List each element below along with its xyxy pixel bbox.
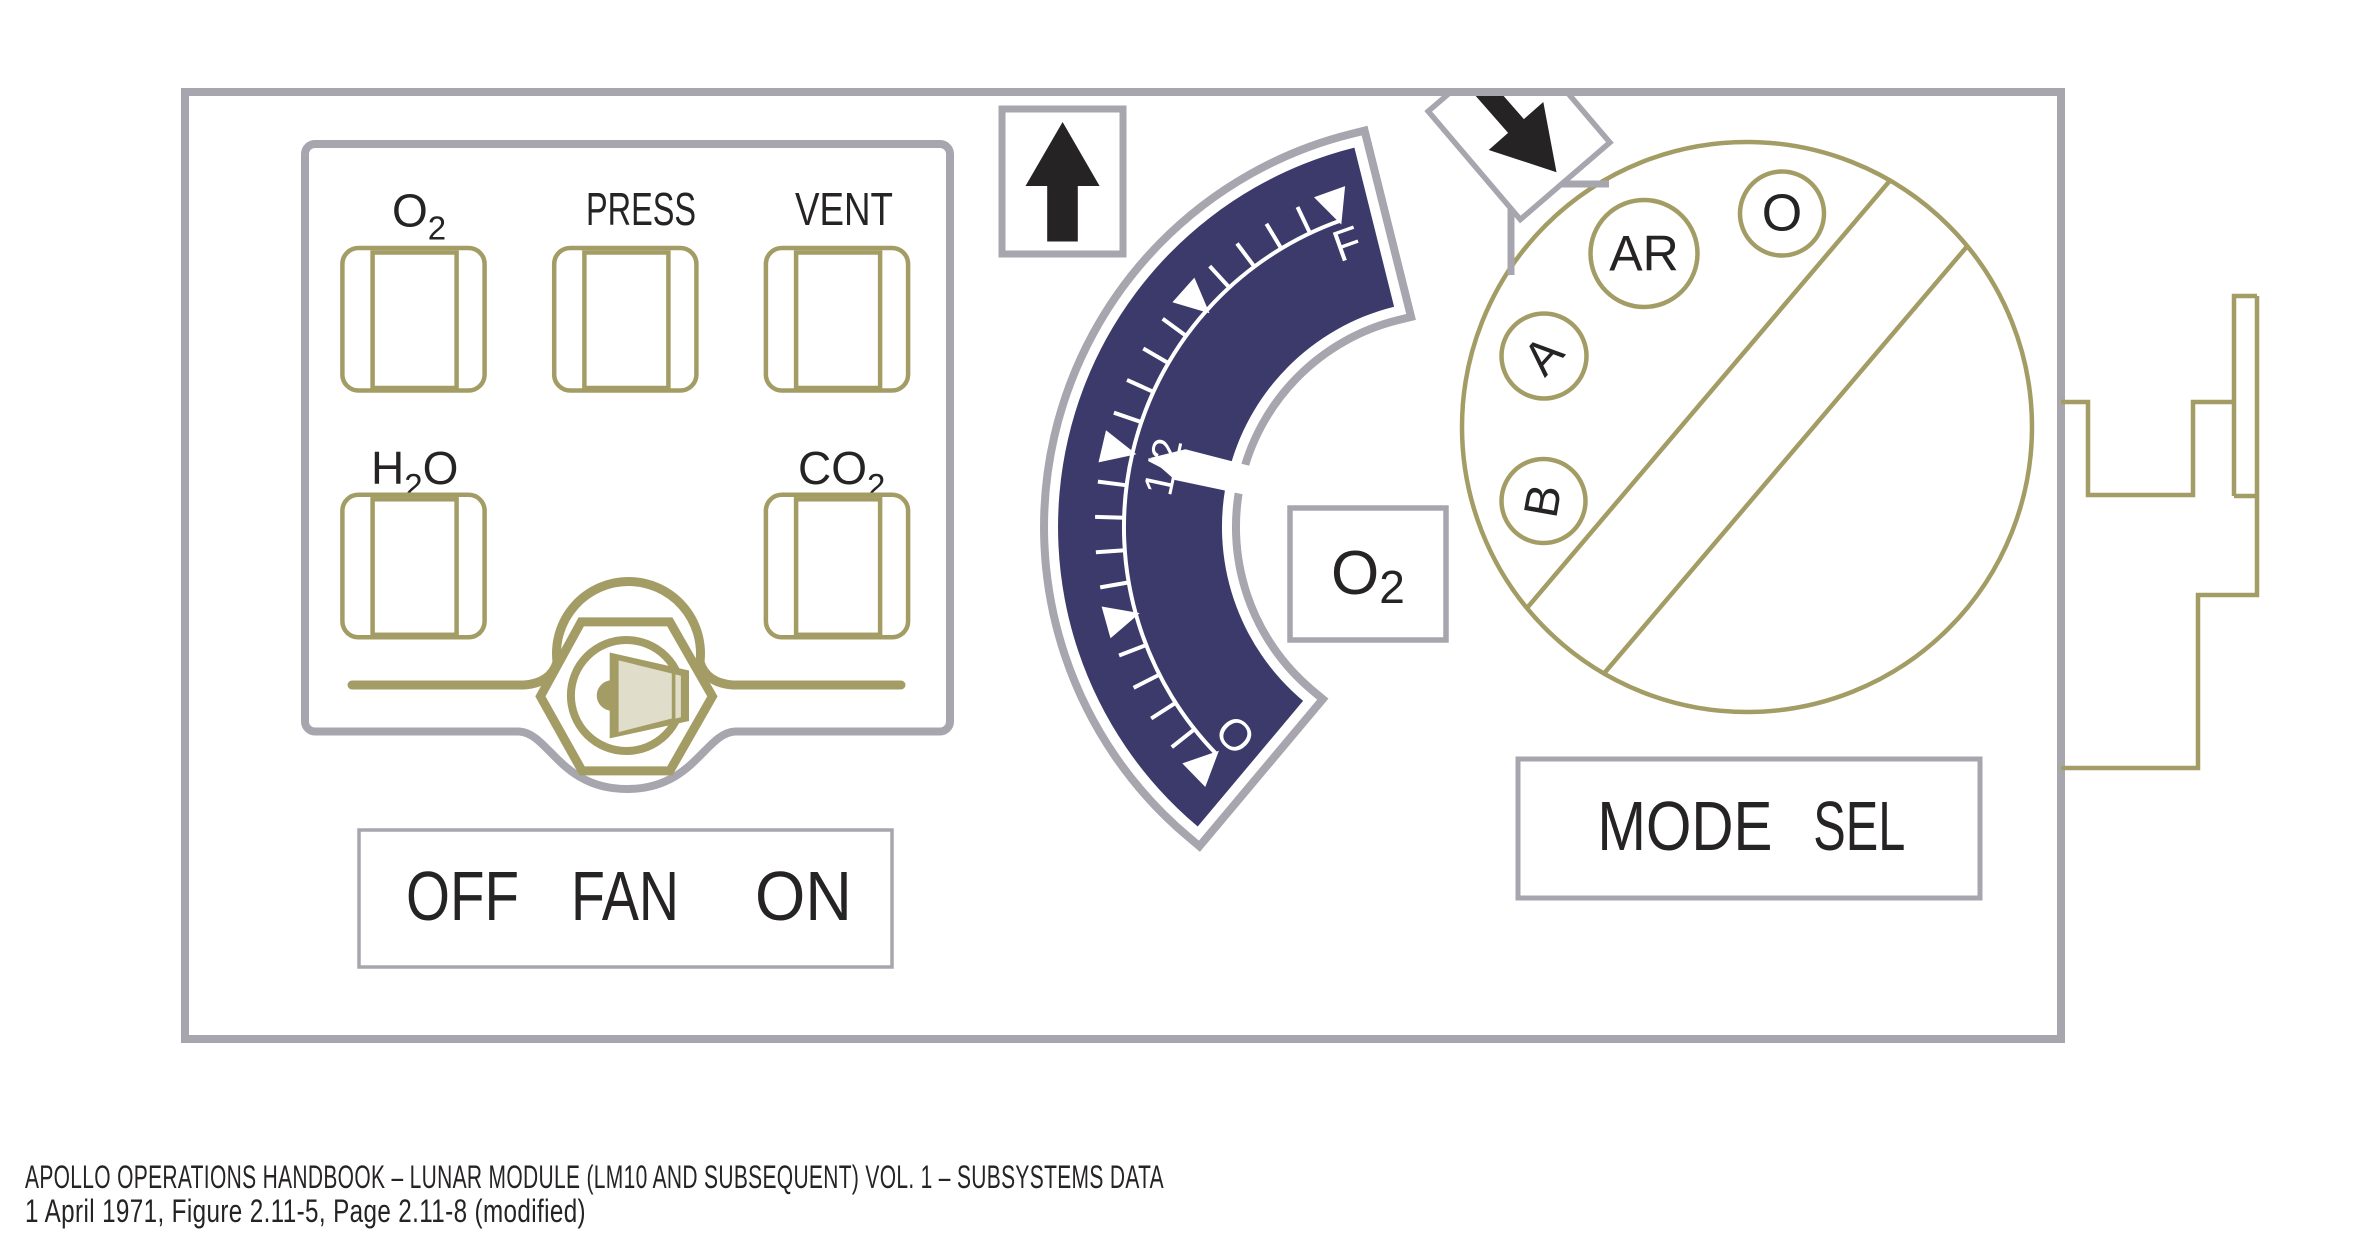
svg-text:ON: ON (755, 857, 852, 935)
svg-text:O2: O2 (1331, 539, 1405, 613)
svg-text:SEL: SEL (1813, 787, 1905, 865)
svg-text:PRESS: PRESS (586, 183, 696, 235)
svg-text:MODE: MODE (1597, 787, 1772, 865)
svg-text:O2: O2 (392, 185, 446, 247)
svg-text:VENT: VENT (795, 183, 893, 235)
svg-text:1 April 1971, Figure 2.11-5, P: 1 April 1971, Figure 2.11-5, Page 2.11-8… (25, 1193, 586, 1229)
svg-text:OFF: OFF (406, 857, 519, 935)
svg-text:AR: AR (1609, 226, 1678, 282)
svg-text:APOLLO OPERATIONS HANDBOOK – L: APOLLO OPERATIONS HANDBOOK – LUNAR MODUL… (25, 1159, 1164, 1195)
svg-text:O: O (1762, 185, 1802, 243)
svg-text:FAN: FAN (571, 857, 679, 935)
